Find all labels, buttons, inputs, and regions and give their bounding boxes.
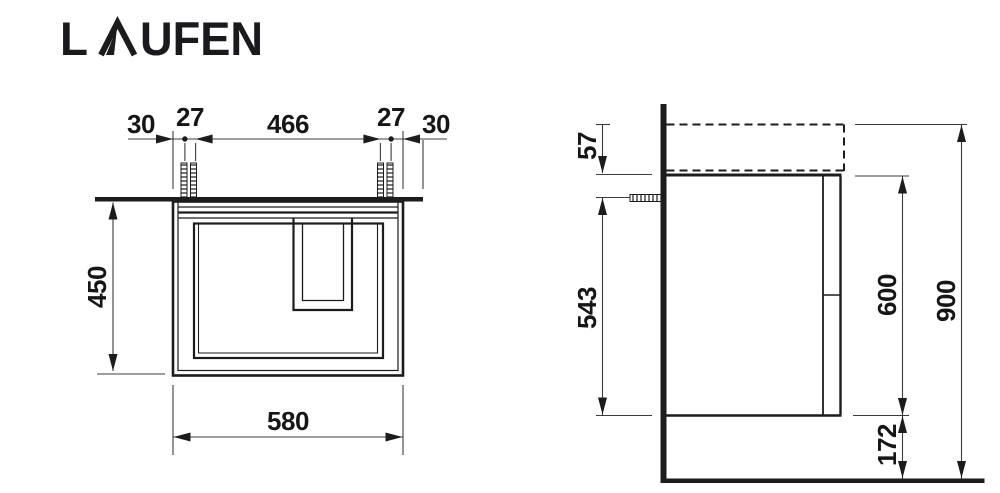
- dim-screw-543: 543: [572, 198, 652, 416]
- dim-label-900: 900: [931, 280, 961, 322]
- dim-height-450: 450: [82, 203, 165, 375]
- arrowhead: [957, 461, 966, 478]
- arrowhead: [898, 398, 907, 415]
- screw-anchor: [181, 163, 187, 197]
- cabinet-top-line: [667, 174, 842, 177]
- technical-drawing-sheet: L UFEN: [0, 0, 1000, 493]
- arrowhead: [598, 398, 607, 415]
- cabinet-inner-line-box: [178, 202, 398, 371]
- dim-label-543: 543: [572, 287, 602, 329]
- logo-letters-ufen: UFEN: [140, 12, 263, 65]
- dim-label-466: 466: [267, 109, 309, 139]
- dim-width-580: 580: [173, 385, 403, 455]
- dim-label-30-left: 30: [127, 109, 155, 139]
- logo-letter-l: L: [60, 12, 88, 65]
- arrowhead: [109, 203, 118, 220]
- arrowhead: [403, 135, 420, 144]
- dimension-dot: [182, 136, 187, 141]
- cabinet-outer-box: [173, 202, 403, 376]
- dim-label-172: 172: [872, 424, 902, 466]
- dim-basin-57: 57: [572, 125, 652, 175]
- front-view: 30 27 466 27 30 450 580: [82, 102, 450, 455]
- dim-label-600: 600: [872, 274, 902, 316]
- dim-label-450: 450: [82, 266, 112, 308]
- arrowhead: [598, 198, 607, 215]
- screw-anchor: [191, 163, 197, 197]
- arrowhead: [174, 433, 191, 442]
- front-cabinet-body: [173, 202, 403, 376]
- dim-label-30-right: 30: [422, 109, 450, 139]
- logo-letter-a-shape: [101, 23, 135, 56]
- front-wall-screws: [181, 163, 393, 197]
- dimension-dot: [388, 136, 393, 141]
- screw-anchor: [378, 163, 384, 197]
- arrowhead: [109, 354, 118, 371]
- arrowhead: [363, 135, 380, 144]
- screw-anchor-side: [630, 195, 661, 202]
- dim-label-57: 57: [572, 132, 602, 160]
- dim-label-27-left: 27: [176, 102, 204, 132]
- screw-anchor: [387, 163, 393, 197]
- arrowhead: [386, 433, 403, 442]
- wall-line: [661, 104, 667, 483]
- technical-drawing-canvas: L UFEN: [0, 0, 1000, 493]
- dim-label-27-right: 27: [377, 102, 405, 132]
- siphon-recess-inner: [303, 224, 344, 301]
- cabinet-interior-opening: [194, 224, 383, 359]
- arrowhead: [898, 177, 907, 194]
- washbasin-dashed-outline: [667, 125, 846, 172]
- floor-line: [661, 479, 985, 484]
- side-view: 57 543 600 172: [572, 104, 985, 483]
- arrowhead: [196, 135, 213, 144]
- arrowhead: [957, 125, 966, 142]
- dim-chain-top: 30 27 466 27 30: [127, 102, 450, 189]
- arrowhead: [156, 135, 173, 144]
- dim-clearance-172: 172: [872, 416, 907, 479]
- dim-cabinet-600: 600: [853, 176, 909, 416]
- dim-label-580: 580: [267, 406, 309, 436]
- side-cabinet-body: [667, 174, 842, 416]
- laufen-logo: L UFEN: [60, 12, 263, 65]
- interior-inner-line: [199, 224, 378, 354]
